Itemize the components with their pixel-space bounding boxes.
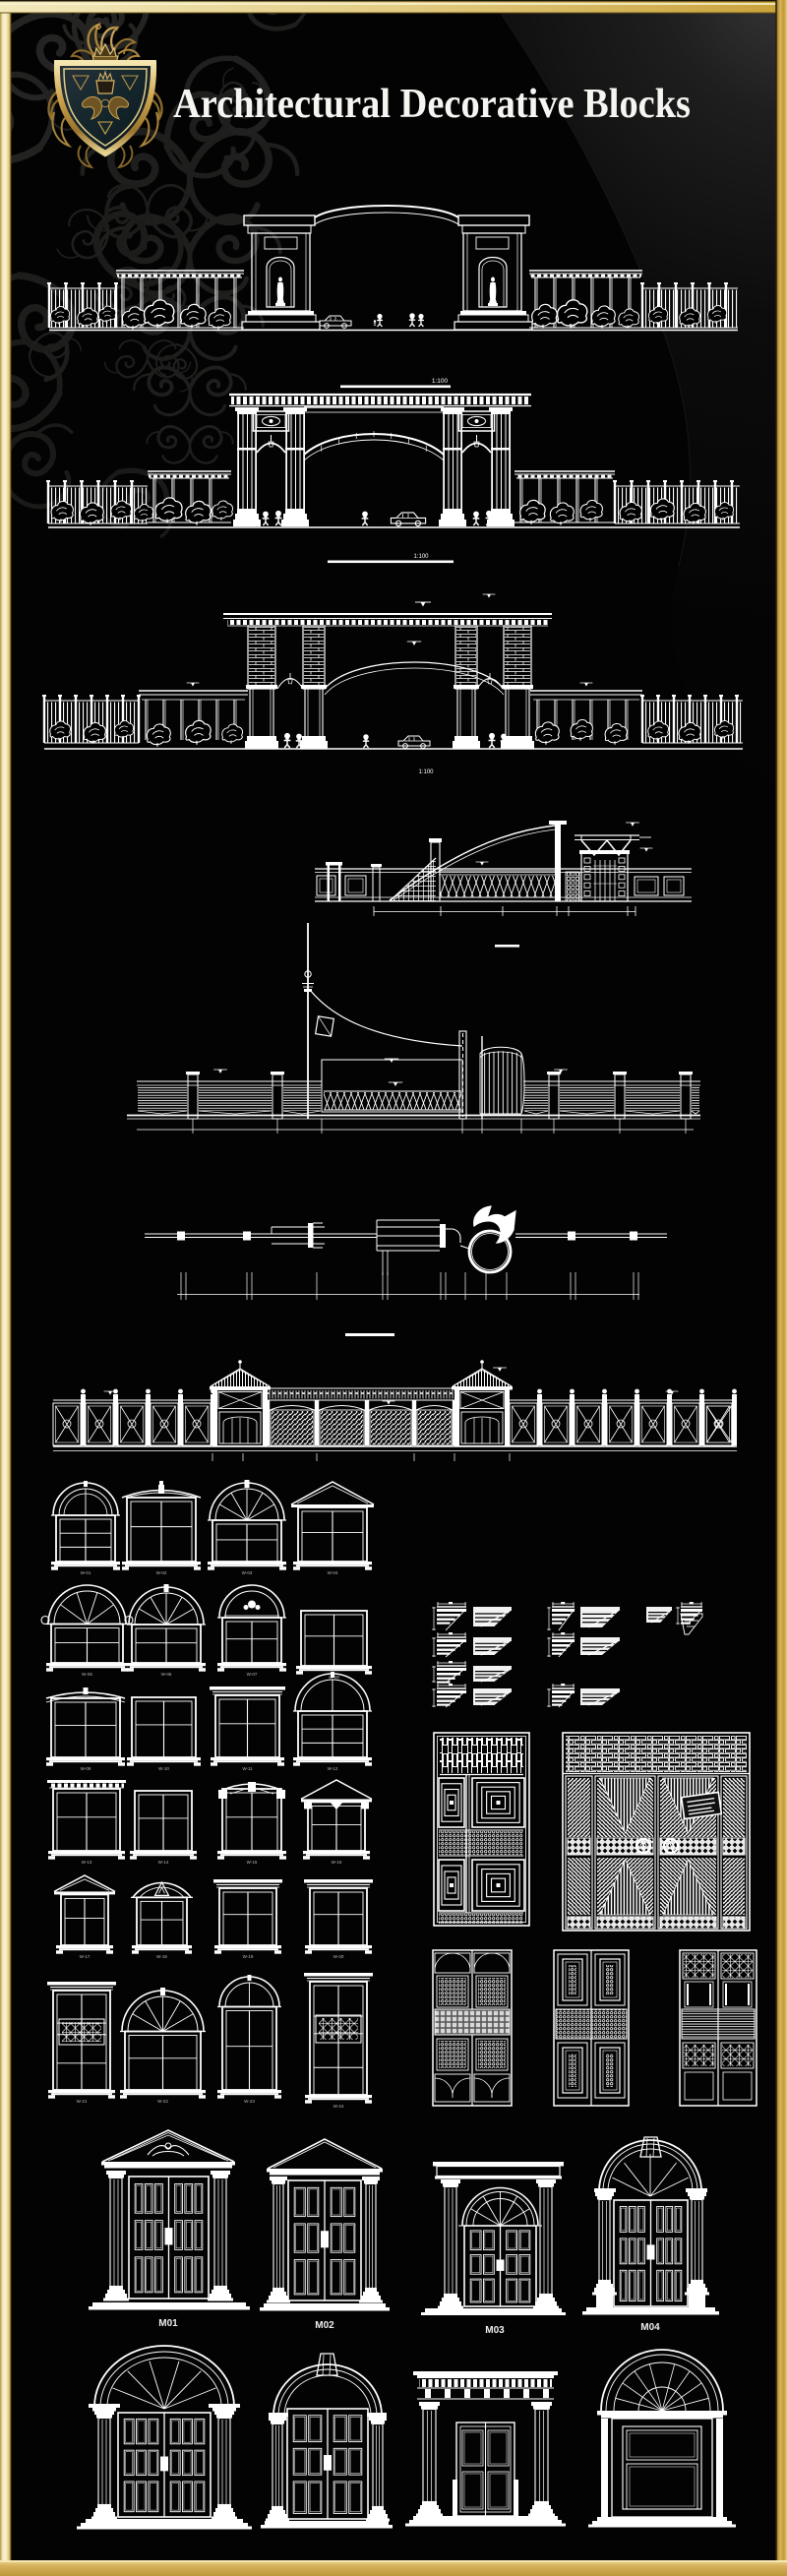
svg-text:W-23: W-23 xyxy=(244,2099,255,2104)
svg-text:W-11: W-11 xyxy=(242,1766,253,1771)
svg-text:W-07: W-07 xyxy=(247,1672,258,1677)
svg-text:W-15: W-15 xyxy=(247,1860,258,1865)
svg-text:M04: M04 xyxy=(640,2322,660,2333)
svg-text:W-06: W-06 xyxy=(161,1672,172,1677)
svg-text:W-02: W-02 xyxy=(156,1570,167,1575)
svg-text:W-17: W-17 xyxy=(80,1954,91,1959)
svg-text:W-13: W-13 xyxy=(82,1860,92,1865)
svg-text:M03: M03 xyxy=(485,2325,505,2336)
svg-text:W-21: W-21 xyxy=(77,2099,88,2104)
svg-text:W-12: W-12 xyxy=(328,1766,338,1771)
svg-text:Architectural Decorative Block: Architectural Decorative Blocks xyxy=(173,82,691,127)
svg-text:W-14: W-14 xyxy=(158,1860,169,1865)
svg-text:W-19: W-19 xyxy=(243,1954,254,1959)
svg-text:M02: M02 xyxy=(315,2320,334,2331)
svg-text:W-20: W-20 xyxy=(333,1954,344,1959)
svg-text:W-16: W-16 xyxy=(332,1860,342,1865)
svg-text:W-01: W-01 xyxy=(81,1570,91,1575)
svg-text:W-04: W-04 xyxy=(328,1570,338,1575)
svg-text:W-05: W-05 xyxy=(82,1672,92,1677)
svg-text:1:100: 1:100 xyxy=(413,554,429,560)
svg-text:W-09: W-09 xyxy=(81,1766,91,1771)
svg-text:M01: M01 xyxy=(158,2318,178,2329)
svg-text:W-22: W-22 xyxy=(157,2099,168,2104)
svg-text:W-10: W-10 xyxy=(158,1766,169,1771)
svg-text:1:100: 1:100 xyxy=(432,378,449,385)
svg-text:1:100: 1:100 xyxy=(418,769,434,775)
svg-text:W-24: W-24 xyxy=(333,2104,344,2109)
svg-text:W-03: W-03 xyxy=(242,1570,253,1575)
svg-text:W-18: W-18 xyxy=(156,1954,167,1959)
